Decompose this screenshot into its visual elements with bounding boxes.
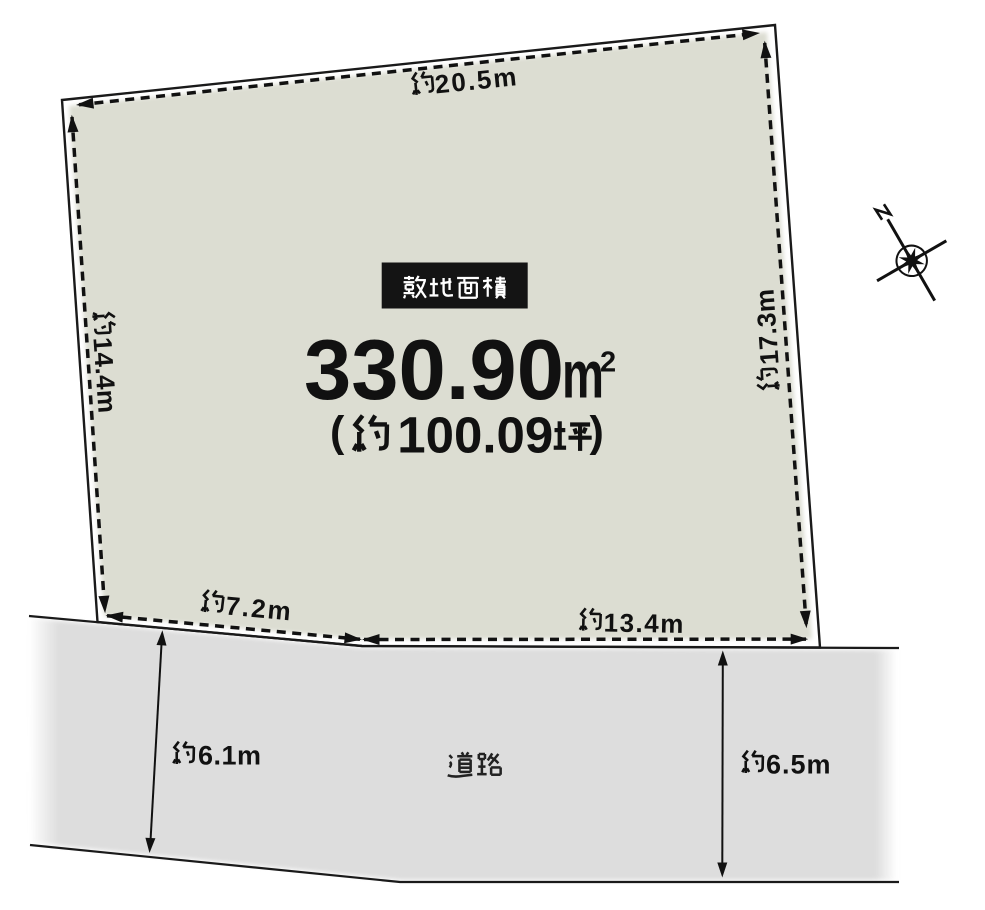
svg-text:2: 2: [600, 346, 616, 378]
svg-text:330.90: 330.90: [304, 323, 564, 418]
svg-text:6.5m: 6.5m: [766, 750, 832, 780]
svg-text:6.1m: 6.1m: [198, 741, 262, 771]
svg-text:17.3m: 17.3m: [749, 288, 784, 366]
svg-text:7.2m: 7.2m: [224, 591, 294, 627]
svg-text:13.4m: 13.4m: [603, 607, 685, 638]
svg-text:m: m: [562, 338, 604, 413]
svg-text:14.4m: 14.4m: [87, 336, 122, 414]
svg-text:(: (: [330, 408, 345, 456]
svg-text:100.09: 100.09: [397, 407, 553, 464]
svg-text:): ): [590, 408, 604, 456]
